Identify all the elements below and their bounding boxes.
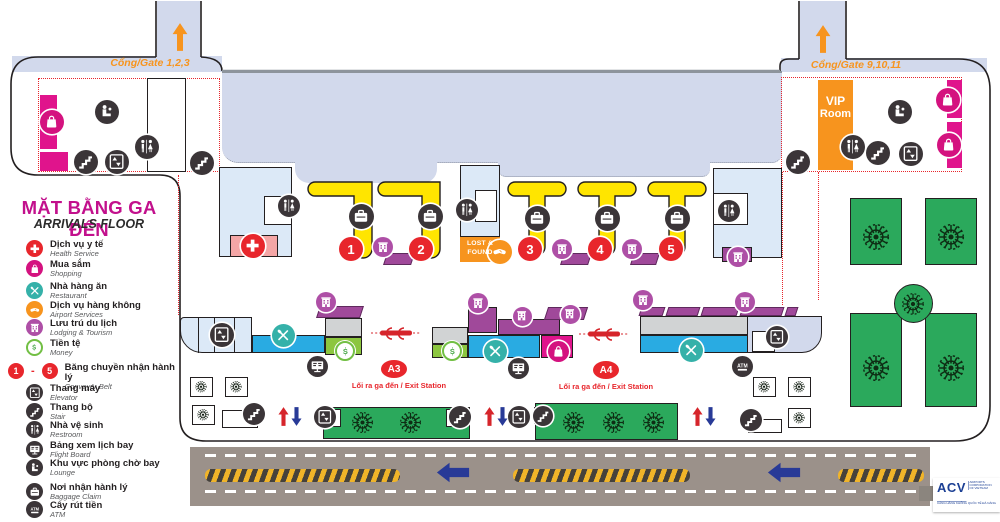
cross-icon	[26, 240, 43, 257]
bag-icon	[26, 260, 43, 277]
range-dash: -	[31, 363, 35, 379]
legend-item-label: Băng chuyền nhận hành lý	[65, 363, 180, 383]
exit-a4-badge: A4	[593, 361, 619, 379]
legend-item: Khu vực phòng chờ bayLounge	[26, 459, 198, 478]
tree-icon	[898, 289, 928, 319]
baggage-icon	[418, 204, 443, 229]
stairs-icon	[190, 151, 214, 175]
arrow-left-icon	[754, 461, 814, 484]
flightboard-icon	[307, 356, 328, 377]
building-icon	[373, 237, 393, 257]
page-subtitle: ARRIVALS FLOOR	[0, 217, 178, 231]
baggage-icon	[26, 483, 43, 500]
tree-icon	[348, 408, 377, 437]
handshake-icon	[26, 301, 43, 318]
arrow-up-icon	[484, 405, 495, 428]
legend-item-text: Lưu trú du lịchLodging & Tourism	[50, 319, 117, 338]
arrivals-floor-map: VIPRoom LOST &FOUND	[0, 0, 1000, 522]
utensils-icon	[272, 324, 295, 347]
arrow-down-icon	[705, 405, 716, 428]
legend-item-text: Khu vực phòng chờ bayLounge	[50, 459, 160, 478]
tree-box-icon	[788, 408, 811, 428]
stairs-icon	[533, 406, 553, 426]
lodging-block	[701, 307, 740, 316]
svg-text:S: S	[32, 346, 36, 352]
belt-number-badge: 5	[42, 363, 58, 379]
stairs-icon	[26, 403, 43, 420]
building-icon	[513, 307, 532, 326]
tree-icon	[933, 219, 969, 255]
acv-subtitle: CẢNG HÀNG KHÔNG QUỐC TẾ ĐÀ NẴNG	[937, 501, 967, 505]
arrow-up-icon	[692, 405, 703, 428]
stairs-icon	[740, 409, 762, 431]
legend-item-text: Mua sắmShopping	[50, 260, 91, 279]
legend-item: Dịch vụ hàng khôngAirport Services	[26, 301, 198, 320]
lodging-block	[666, 307, 701, 316]
arrow-down-icon	[291, 405, 302, 428]
baggage-icon	[525, 206, 550, 231]
svg-text:ATM: ATM	[30, 506, 39, 511]
restroom-icon	[135, 135, 159, 159]
legend-item-sublabel: Money	[50, 349, 80, 358]
hazard-stripe	[513, 469, 690, 482]
belt-number-badge: 2	[409, 237, 433, 261]
divider	[198, 317, 199, 353]
arrow-down-icon	[497, 405, 508, 428]
guide-line	[782, 172, 783, 305]
bag-icon	[40, 110, 64, 134]
building-icon	[316, 292, 336, 312]
baggage-icon	[349, 204, 374, 229]
baggage-icon	[665, 206, 690, 231]
legend-item: STiền tệMoney	[26, 339, 198, 358]
tree-icon	[858, 219, 894, 255]
logo-mark	[919, 486, 934, 501]
elevator-icon	[314, 406, 336, 428]
stairs-icon	[74, 150, 98, 174]
legend-item-text: Thang bộStair	[50, 403, 93, 422]
tree-box-icon	[225, 377, 248, 397]
legend-item-text: Nơi nhận hành lýBaggage Claim	[50, 483, 127, 502]
baggage-icon	[595, 206, 620, 231]
acv-tagline: AIRPORTS CORPORATION OF VIETNAM	[968, 481, 992, 490]
utensils-icon	[680, 339, 703, 362]
lane-marking	[205, 454, 920, 457]
legend-item-text: Cây rút tiềnATM	[50, 501, 102, 520]
legend-item-text: Bảng xem lịch bayFlight Board	[50, 441, 133, 460]
legend-item: Lưu trú du lịchLodging & Tourism	[26, 319, 198, 338]
bag-icon	[937, 133, 961, 157]
legend-item-sublabel: Health Service	[50, 250, 103, 259]
legend-item: Thang bộStair	[26, 403, 198, 422]
arrow-left-icon	[424, 461, 482, 484]
belt-number-badge: 1	[8, 363, 24, 379]
lost-found-label: LOST &FOUND	[460, 240, 500, 257]
tree-box-icon	[788, 377, 811, 397]
legend-item-sublabel: ATM	[50, 511, 102, 520]
acv-logo-text: ACV	[937, 481, 966, 494]
elevator-icon	[508, 406, 530, 428]
lane-marking	[205, 490, 920, 493]
guide-line	[818, 172, 819, 300]
service-block	[640, 316, 748, 335]
exit-a3-label: Lối ra ga đến / Exit Station	[334, 381, 464, 390]
building-icon	[552, 239, 572, 259]
lounge-icon	[95, 100, 119, 124]
tree-icon	[933, 350, 969, 386]
utensils-icon	[484, 340, 507, 363]
utensils-icon	[26, 282, 43, 299]
stairs-icon	[243, 403, 265, 425]
flightboard-icon	[508, 358, 529, 379]
belt-number-badge: 4	[588, 237, 612, 261]
legend-item-text: Thang máyElevator	[50, 384, 100, 403]
arrow-up-icon	[814, 24, 832, 54]
legend-item-text: Tiền tệMoney	[50, 339, 80, 358]
legend-item-text: Dịch vụ y tếHealth Service	[50, 240, 103, 259]
shop-block	[40, 152, 68, 171]
legend-item-sublabel: Lodging & Tourism	[50, 329, 117, 338]
tree-icon	[396, 408, 425, 437]
elevator-icon	[766, 326, 788, 348]
tree-icon	[858, 350, 894, 386]
legend-item-text: Nhà hàng ănRestaurant	[50, 282, 107, 301]
building-icon	[561, 305, 580, 324]
exit-a3-badge: A3	[381, 360, 407, 378]
room	[475, 190, 497, 222]
building-icon	[728, 247, 748, 267]
stairs-icon	[786, 150, 810, 174]
exit-a4-label: Lối ra ga đến / Exit Station	[541, 382, 671, 391]
legend-item: Nơi nhận hành lýBaggage Claim	[26, 483, 198, 502]
bag-icon	[548, 341, 569, 362]
atm-icon: ATM	[26, 501, 43, 518]
legend-item: Bảng xem lịch bayFlight Board	[26, 441, 198, 460]
legend-item: ATMCây rút tiềnATM	[26, 501, 198, 520]
legend-item: Dịch vụ y tếHealth Service	[26, 240, 198, 259]
hazard-stripe	[838, 469, 924, 482]
money-icon: S	[335, 341, 355, 361]
restroom-icon	[26, 421, 43, 438]
legend-item-sublabel: Lounge	[50, 469, 160, 478]
elevator-icon	[210, 323, 234, 347]
legend-item-text: Dịch vụ hàng khôngAirport Services	[50, 301, 141, 320]
legend-item: Nhà hàng ănRestaurant	[26, 282, 198, 301]
elevator-icon	[105, 150, 129, 174]
lounge-icon	[26, 459, 43, 476]
legend-item-text: Nhà vệ sinhRestroom	[50, 421, 103, 440]
svg-text:ATM: ATM	[737, 363, 748, 369]
building-icon	[26, 319, 43, 336]
money-icon: S	[442, 341, 462, 361]
building-icon	[622, 239, 642, 259]
tree-icon	[599, 408, 628, 437]
legend-item-sublabel: Restroom	[50, 431, 103, 440]
legend-item: Thang máyElevator	[26, 384, 198, 403]
building-icon	[633, 290, 653, 310]
restroom-icon	[718, 200, 740, 222]
acv-logo: ACV AIRPORTS CORPORATION OF VIETNAM CẢNG…	[933, 478, 1000, 512]
cross-icon	[241, 234, 265, 258]
money-icon: S	[26, 339, 43, 356]
lounge-icon	[888, 100, 912, 124]
belt-number-badge: 3	[518, 237, 542, 261]
restroom-icon	[456, 199, 478, 221]
legend-item: Nhà vệ sinhRestroom	[26, 421, 198, 440]
elevator-icon	[899, 142, 923, 166]
legend-item: Mua sắmShopping	[26, 260, 198, 279]
atm-icon: ATM	[732, 356, 753, 377]
building-icon	[468, 293, 488, 313]
hazard-stripe	[205, 469, 400, 482]
divider	[234, 317, 235, 353]
belt-number-badge: 5	[659, 237, 683, 261]
arrow-up-icon	[278, 405, 289, 428]
restroom-icon	[278, 195, 300, 217]
flightboard-icon	[26, 441, 43, 458]
service-block	[325, 318, 362, 337]
building-icon	[735, 292, 755, 312]
arrow-up-icon	[171, 22, 189, 52]
tree-box-icon	[753, 377, 776, 397]
vip-room-label: VIPRoom	[818, 95, 853, 121]
stairs-icon	[866, 141, 890, 165]
bag-icon	[936, 88, 960, 112]
legend-item-sublabel: Shopping	[50, 270, 91, 279]
gate-label-right: Cổng/Gate 9,10,11	[776, 59, 936, 71]
elevator-icon	[26, 384, 43, 401]
tree-icon	[639, 408, 668, 437]
stairs-icon	[449, 406, 471, 428]
tree-icon	[559, 408, 588, 437]
gate-label-left: Cổng/Gate 1,2,3	[70, 57, 230, 69]
belt-number-badge: 1	[339, 237, 363, 261]
room	[147, 78, 186, 172]
restroom-icon	[841, 135, 865, 159]
